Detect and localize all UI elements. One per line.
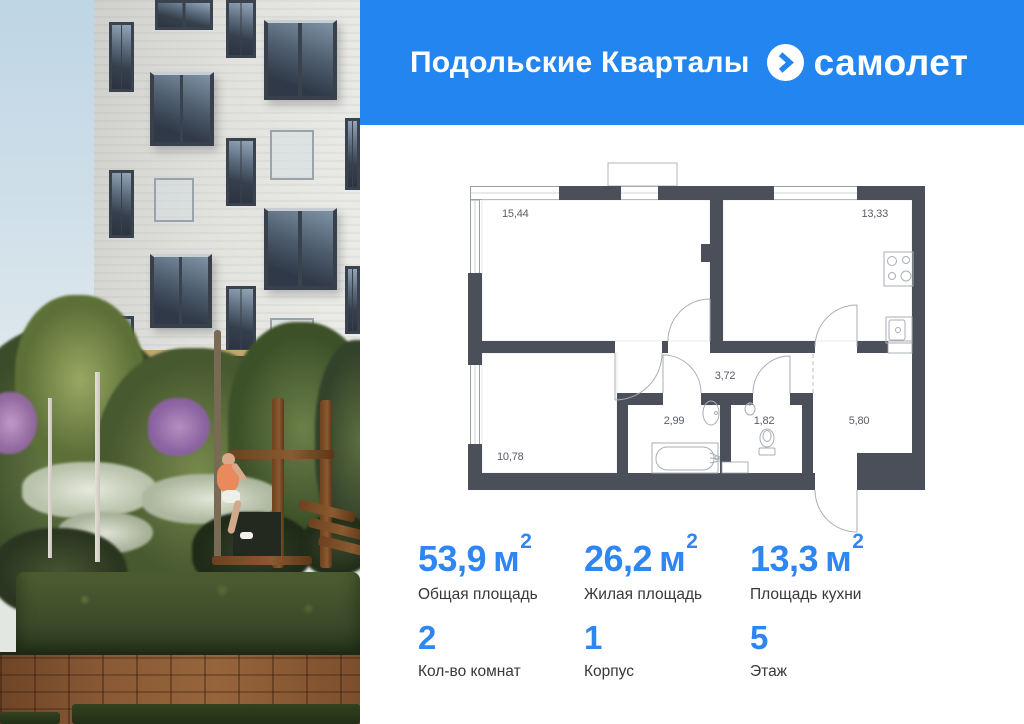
- apartment-listing-card[interactable]: Подольские Кварталы самолет: [0, 0, 1024, 724]
- balance-beam: [212, 556, 312, 565]
- plan-fixtures: [652, 252, 913, 473]
- toilet-icon: [760, 429, 774, 447]
- room-label: 5,80: [849, 415, 870, 427]
- stat-value: 26,2: [584, 538, 652, 579]
- room-label: 3,72: [715, 370, 736, 382]
- birch-trunk: [95, 372, 100, 562]
- stat-label: Общая площадь: [418, 586, 538, 604]
- courtyard-photo: [0, 0, 360, 724]
- stat-label: Жилая площадь: [584, 586, 702, 604]
- brand-name: самолет: [814, 42, 969, 84]
- project-title: Подольские Кварталы: [410, 46, 750, 80]
- stat-value: 53,9: [418, 538, 486, 579]
- kitchen-sink-icon: [886, 317, 912, 343]
- room-label: 1,82: [754, 415, 775, 427]
- stat-value: 1: [584, 621, 634, 654]
- grass-strip: [0, 712, 60, 724]
- brand-logo: самолет: [767, 42, 969, 84]
- stat-value: 2: [418, 621, 521, 654]
- stat-value: 5: [750, 621, 787, 654]
- balcony-outline: [608, 163, 677, 186]
- floor-plan: 15,44 13,33 3,72 2,99 1,82 5,80 10,78: [455, 160, 925, 538]
- stat-rooms-count: 2 Кол-во комнат: [418, 621, 521, 681]
- room-label: 15,44: [502, 208, 529, 220]
- stat-total-area: 53,9м2 Общая площадь: [418, 541, 538, 604]
- floor-plan-drawing: 15,44 13,33 3,72 2,99 1,82 5,80 10,78: [455, 160, 925, 538]
- stat-label: Этаж: [750, 663, 787, 681]
- tree-trunk: [214, 330, 221, 565]
- card-body: Подольские Кварталы самолет: [360, 0, 1024, 724]
- grass-strip: [72, 704, 360, 724]
- room-label: 10,78: [497, 451, 524, 463]
- room-label: 13,33: [861, 208, 888, 220]
- plan-hairlines: [482, 200, 912, 473]
- playground-beam: [228, 450, 334, 459]
- stat-building: 1 Корпус: [584, 621, 634, 681]
- plan-doors: [615, 299, 857, 532]
- child-shoe: [240, 532, 253, 539]
- brand-arrow-icon: [767, 44, 804, 81]
- room-label: 2,99: [664, 415, 685, 427]
- stat-floor: 5 Этаж: [750, 621, 787, 681]
- plan-room-labels: 15,44 13,33 3,72 2,99 1,82 5,80 10,78: [497, 208, 888, 463]
- stat-kitchen-area: 13,3м2 Площадь кухни: [750, 541, 862, 604]
- birch-trunk: [48, 398, 52, 558]
- stat-label: Корпус: [584, 663, 634, 681]
- card-header: Подольские Кварталы самолет: [360, 0, 1024, 125]
- stat-label: Площадь кухни: [750, 586, 862, 604]
- stat-value: 13,3: [750, 538, 818, 579]
- plan-walls: [468, 186, 925, 490]
- stat-label: Кол-во комнат: [418, 663, 521, 681]
- hedge: [16, 572, 360, 664]
- stat-living-area: 26,2м2 Жилая площадь: [584, 541, 702, 604]
